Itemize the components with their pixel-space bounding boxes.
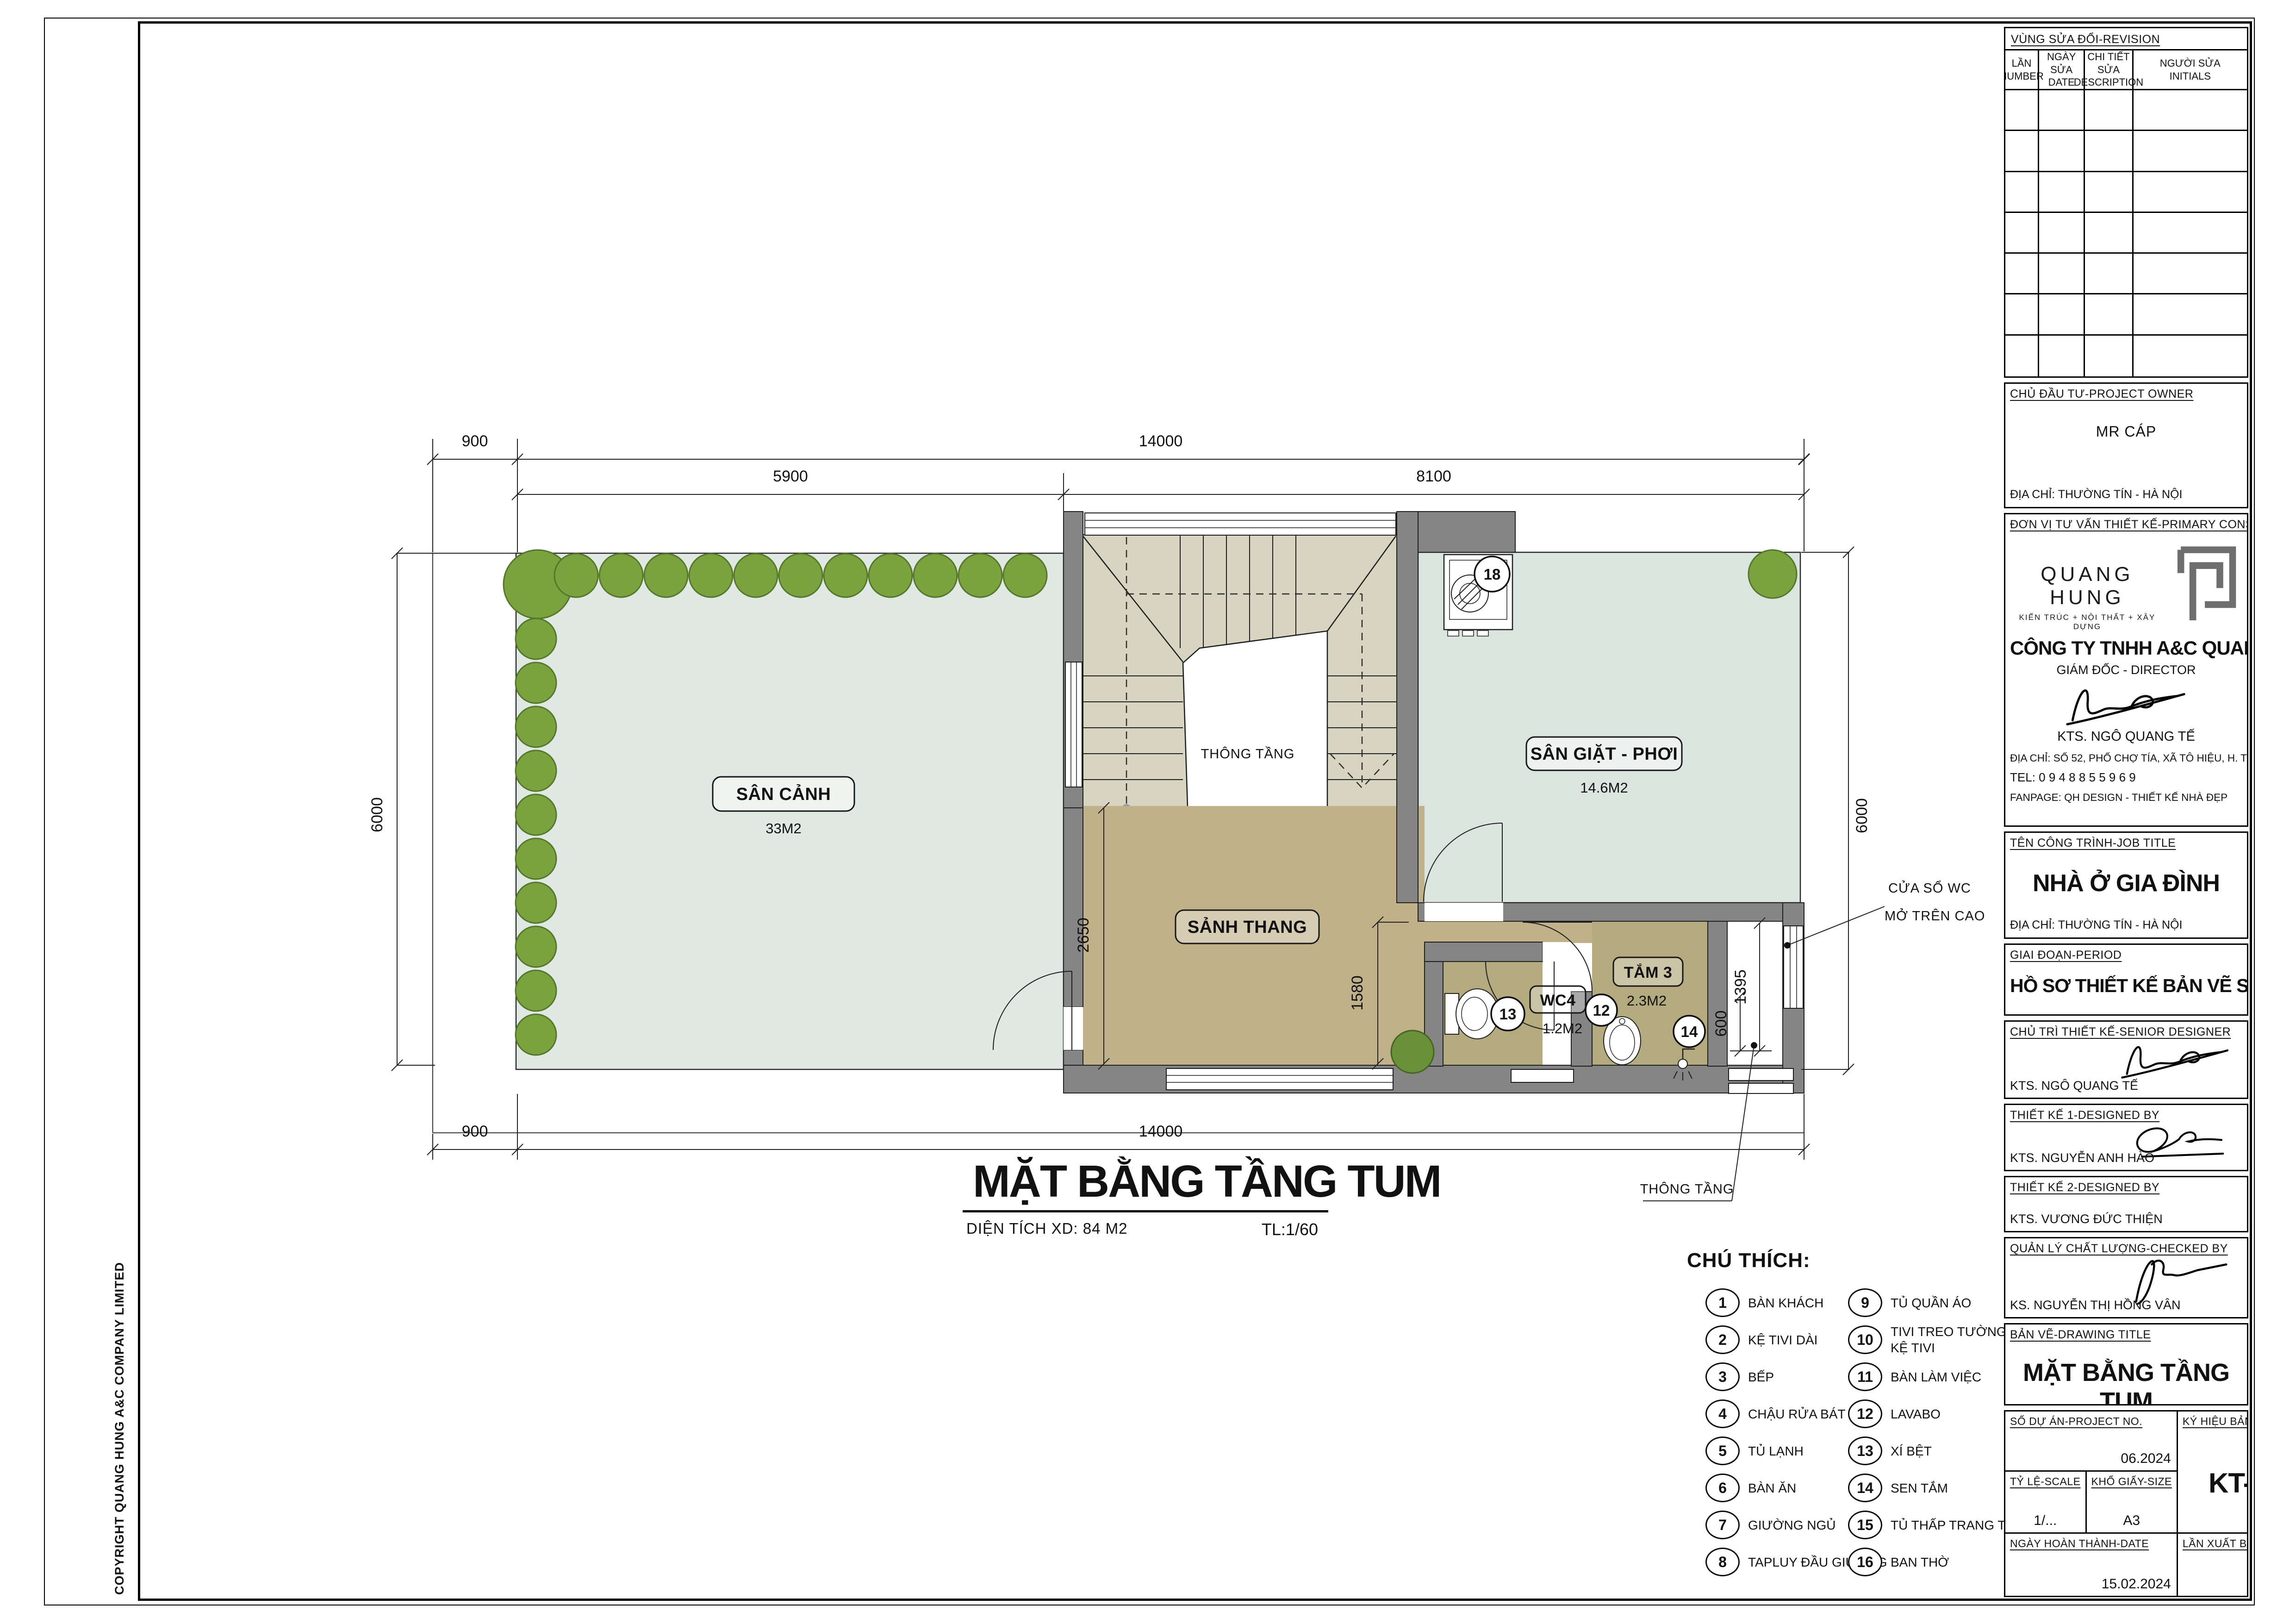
period-section: GIAI ĐOẠN-PERIOD HỒ SƠ THIẾT KẾ BẢN VẼ S… [2004,943,2248,1016]
legend-item-12: 12LAVABO [1848,1395,2018,1432]
company-logo-icon [2167,537,2242,632]
note-wc-window-line2: MỞ TRÊN CAO [1885,908,1985,924]
paper-size-value: A3 [2087,1513,2177,1529]
revision-col-number: LẦNNUMBER [2005,50,2039,90]
designer2-heading: THIẾT KẾ 2-DESIGNED BY [2010,1181,2242,1194]
meta-section: SỐ DỰ ÁN-PROJECT NO. 06.2024 KÝ HIỆU BẢN… [2004,1410,2248,1597]
director-name: KTS. NGÔ QUANG TẾ [2010,729,2242,744]
senior-name: KTS. NGÔ QUANG TẾ [2010,1079,2138,1093]
revision-row-cell [2005,336,2039,376]
date-value: 15.02.2024 [2102,1576,2171,1592]
dim-600: 600 [1712,1011,1730,1037]
scale-value: 1/... [2005,1513,2085,1529]
title-block: VÙNG SỬA ĐỔI-REVISION LẦNNUMBER NGÀY SỬA… [2004,27,2248,1597]
staircase: THÔNG TẦNG [1083,535,1397,813]
dim-1395: 1395 [1732,969,1749,1005]
corridor-floor [1418,921,1592,943]
plan-scale: TL:1/60 [1262,1220,1318,1239]
room-area-san-giat: 14.6M2 [1580,780,1628,796]
note-void: THÔNG TẦNG [1640,1181,1734,1197]
revision-col-description: CHI TIẾT SỬADESCRIPTION [2085,50,2133,90]
room-label-wc4: WC4 [1540,992,1575,1009]
period-heading: GIAI ĐOẠN-PERIOD [2010,949,2242,962]
note-wc-window-line1: CỬA SỔ WC [1888,880,1971,896]
drawing-sheet: { "sheet": { "copyright": "COPYRIGHT QUA… [0,0,2296,1624]
dim-8100: 8100 [1416,468,1451,485]
owner-address: ĐỊA CHỈ: THƯỜNG TÍN - HÀ NỘI [2010,488,2182,501]
dim-bottom-14000: 14000 [1139,1123,1183,1140]
paper-size-label: KHỔ GIẤY-SIZE [2091,1475,2172,1488]
revision-no-label: LẦN XUẤT BẢN-REVISION [2183,1537,2248,1550]
date-cell: NGÀY HOÀN THÀNH-DATE 15.02.2024 [2005,1534,2178,1596]
room-label-san-canh: SÂN CẢNH [736,784,831,804]
drawing-no-value: KT-A0.04 [2178,1467,2248,1499]
company-logo-text: QUANG HUNG KIẾN TRÚC + NỘI THẤT + XÂY DỰ… [2010,563,2165,631]
consultant-section: ĐƠN VỊ TƯ VẤN THIẾT KẾ-PRIMARY CONSULTAN… [2004,513,2248,827]
room-label-sanh-thang: SẢNH THANG [1188,917,1307,937]
revision-table: LẦNNUMBER NGÀY SỬADATE CHI TIẾT SỬADESCR… [2005,49,2247,376]
revision-row-cell [2005,131,2039,172]
caption-underline [963,1210,1328,1212]
consultant-heading: ĐƠN VỊ TƯ VẤN THIẾT KẾ-PRIMARY CONSULTAN… [2010,518,2242,531]
owner-heading: CHỦ ĐẦU TƯ-PROJECT OWNER [2010,387,2242,401]
designer2-section: THIẾT KẾ 2-DESIGNED BY KTS. VƯƠNG ĐỨC TH… [2004,1176,2248,1232]
dim-5900: 5900 [773,468,808,485]
director-signature [2059,678,2193,729]
legend: CHÚ THÍCH: 1BÀN KHÁCH 2KỆ TIVI DÀI 3BẾP … [1687,1249,2011,1590]
paper-size-cell: KHỔ GIẤY-SIZE A3 [2087,1472,2177,1532]
floor-plan: THÔNG TẦNG [370,417,2004,1227]
legend-item-11: 11BÀN LÀM VIỆC [1848,1358,2018,1395]
dim-right-6000: 6000 [1853,798,1871,833]
legend-title: CHÚ THÍCH: [1687,1249,2011,1272]
company-tel: TEL: 0 9 4 8 8 5 5 9 6 9 [2010,767,2242,788]
copyright-text: COPYRIGHT QUANG HUNG A&C COMPANY LIMITED [112,1187,127,1595]
legend-item-9: 9TỦ QUẦN ÁO [1848,1284,2018,1321]
legend-item-14: 14SEN TẮM [1848,1469,2018,1506]
room-area-san-canh: 33M2 [765,820,802,837]
marker-14: 14 [1681,1023,1698,1040]
plan-caption: MẶT BẰNG TẦNG TUM DIỆN TÍCH XD: 84 M2 TL… [963,1154,1342,1239]
director-role: GIÁM ĐỐC - DIRECTOR [2010,663,2242,677]
room-label-tam3: TẮM 3 [1624,964,1673,981]
dim-left-6000: 6000 [370,797,386,832]
revision-row-cell [2005,90,2039,131]
checked-name: KS. NGUYỄN THỊ HỒNG VÂN [2010,1298,2181,1312]
marker-13: 13 [1500,1006,1517,1023]
project-no-cell: SỐ DỰ ÁN-PROJECT NO. 06.2024 [2005,1412,2178,1472]
revision-row-cell [2005,254,2039,294]
checked-signature [2108,1251,2233,1305]
legend-item-16: 16BAN THỜ [1848,1543,2018,1580]
dim-1580: 1580 [1349,975,1366,1011]
revision-row-cell [2005,213,2039,254]
drawing-title: MẶT BẰNG TẦNG TUM [2010,1358,2242,1405]
dim-2650: 2650 [1075,918,1092,953]
scale-label: TỶ LỆ-SCALE [2010,1475,2081,1488]
stair-void-label: THÔNG TẦNG [1201,746,1295,762]
senior-designer-section: CHỦ TRÌ THIẾT KẾ-SENIOR DESIGNER KTS. NG… [2004,1020,2248,1099]
project-no-value: 06.2024 [2121,1451,2171,1467]
drawing-no-cell: KÝ HIỆU BẢN VẼ-DRAWING NO. KT-A0.04 [2178,1412,2248,1534]
drawing-title-section: BẢN VẼ-DRAWING TITLE MẶT BẰNG TẦNG TUM [2004,1323,2248,1405]
revision-section: VÙNG SỬA ĐỔI-REVISION LẦNNUMBER NGÀY SỬA… [2004,27,2248,378]
job-section: TÊN CÔNG TRÌNH-JOB TITLE NHÀ Ở GIA ĐÌNH … [2004,831,2248,939]
owner-section: CHỦ ĐẦU TƯ-PROJECT OWNER MR CÁP ĐỊA CHỈ:… [2004,382,2248,508]
legend-item-10: 10TIVI TREO TƯỜNGKỆ TIVI [1848,1321,2018,1358]
scale-size-row: TỶ LỆ-SCALE 1/... KHỔ GIẤY-SIZE A3 [2005,1472,2178,1534]
room-area-wc4: 1.2M2 [1543,1020,1582,1037]
room-label-san-giat: SÂN GIẶT - PHƠI [1531,743,1678,764]
designer2-name: KTS. VƯƠNG ĐỨC THIỆN [2010,1212,2163,1226]
dim-bottom-900: 900 [462,1123,488,1140]
period-name: HỒ SƠ THIẾT KẾ BẢN VẼ SƠ BỘ [2010,975,2242,997]
legend-item-13: 13XÍ BỆT [1848,1432,2018,1469]
legend-column-2: 9TỦ QUẦN ÁO 10TIVI TREO TƯỜNGKỆ TIVI 11B… [1848,1284,2018,1580]
owner-name: MR CÁP [2010,423,2242,440]
company-fanpage: FANPAGE: QH DESIGN - THIẾT KẾ NHÀ ĐẸP [2010,788,2242,806]
dim-top-14000: 14000 [1139,432,1183,450]
project-no-label: SỐ DỰ ÁN-PROJECT NO. [2010,1415,2172,1428]
revision-col-initials: NGƯỜI SỬAINITIALS [2134,50,2247,90]
dim-top-900: 900 [462,432,488,450]
company-name: CÔNG TY TNHH A&C QUANG HƯNG [2010,637,2242,659]
stair-void [1183,631,1327,807]
hall-plant [1391,1031,1434,1073]
legend-item-15: 15TỦ THẤP TRANG TRÍ [1848,1506,2018,1543]
room-area-tam3: 2.3M2 [1627,993,1667,1009]
checked-section: QUẢN LÝ CHẤT LƯỢNG-CHECKED BY KS. NGUYỄN… [2004,1237,2248,1318]
plan-built-area: DIỆN TÍCH XD: 84 M2 [966,1220,1127,1239]
drawing-no-label: KÝ HIỆU BẢN VẼ-DRAWING NO. [2183,1415,2248,1428]
job-name: NHÀ Ở GIA ĐÌNH [2010,869,2242,897]
marker-18: 18 [1484,566,1501,583]
company-address: ĐỊA CHỈ: SỐ 52, PHỐ CHỢ TÍA, XÃ TÔ HIỆU,… [2010,749,2242,767]
scale-cell: TỶ LỆ-SCALE 1/... [2005,1472,2087,1532]
drawing-heading: BẢN VẼ-DRAWING TITLE [2010,1328,2242,1342]
job-address: ĐỊA CHỈ: THƯỜNG TÍN - HÀ NỘI [2010,918,2182,932]
designer1-name: KTS. NGUYỄN ANH HÀO [2010,1151,2154,1165]
revision-no-cell: LẦN XUẤT BẢN-REVISION R01 [2178,1534,2248,1596]
revision-row-cell [2005,294,2039,335]
job-heading: TÊN CÔNG TRÌNH-JOB TITLE [2010,837,2242,850]
revision-title: VÙNG SỬA ĐỔI-REVISION [2005,28,2247,49]
designer1-section: THIẾT KẾ 1-DESIGNED BY KTS. NGUYỄN ANH H… [2004,1104,2248,1171]
marker-12: 12 [1593,1002,1610,1019]
revision-row-cell [2005,172,2039,213]
plan-title: MẶT BẰNG TẦNG TUM [973,1156,1440,1207]
date-label: NGÀY HOÀN THÀNH-DATE [2010,1537,2172,1550]
senior-signature [2117,1035,2233,1083]
